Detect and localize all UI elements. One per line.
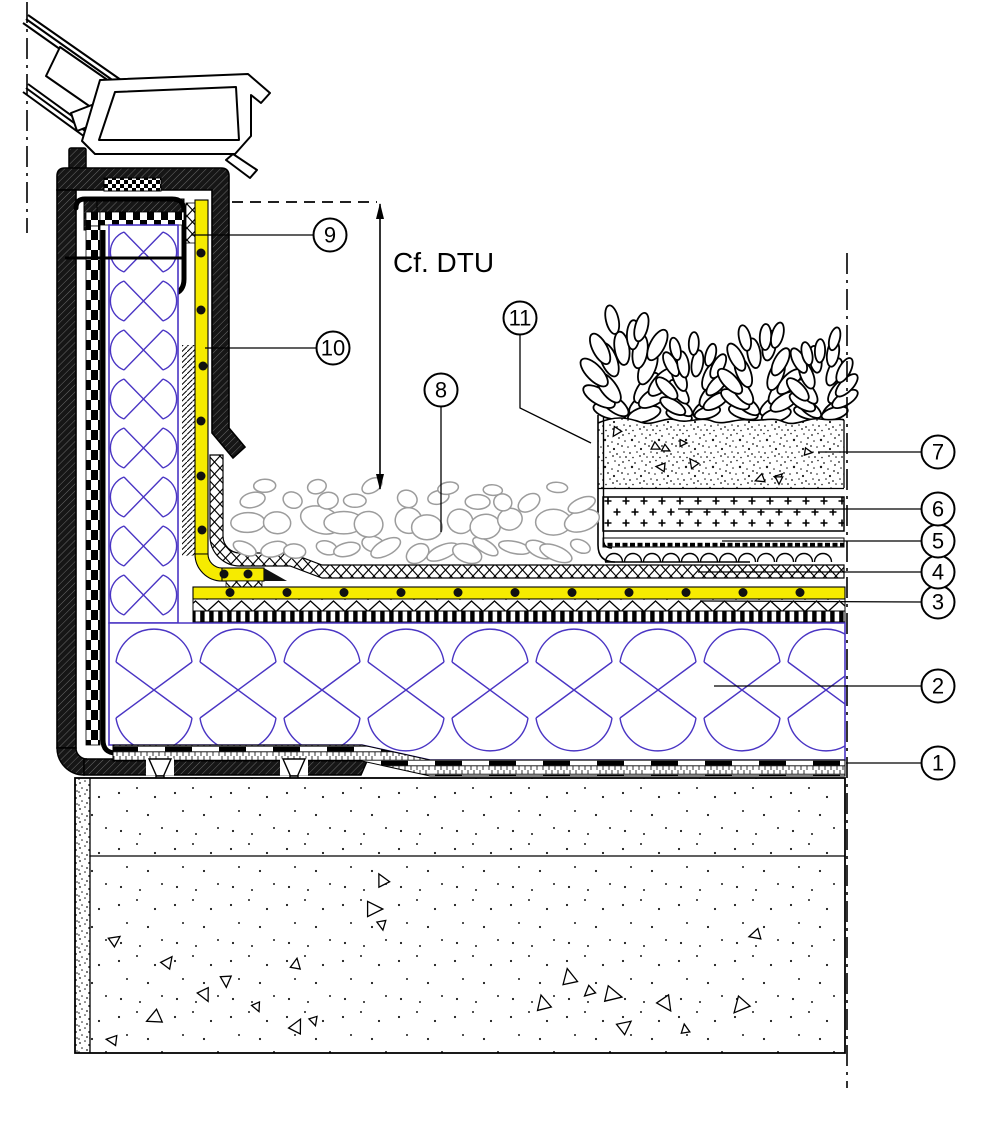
callout-10-label: 10 bbox=[321, 336, 345, 361]
layer-3-base-sheet bbox=[193, 611, 845, 622]
metal-coping-profile bbox=[23, 15, 270, 178]
callout-11: 11 bbox=[504, 302, 592, 444]
concrete-slab bbox=[75, 778, 845, 1053]
outer-wall-cladding bbox=[57, 190, 76, 748]
green-roof-buildup bbox=[576, 304, 861, 562]
coping-drip-tail bbox=[226, 154, 257, 178]
sedum-plants bbox=[576, 304, 861, 426]
vapour-barrier-top-wrap bbox=[100, 212, 184, 225]
gravel-pebbles bbox=[230, 474, 602, 567]
callout-7-label: 7 bbox=[932, 440, 944, 465]
technical-drawing-canvas: Cf. DTU 1234567891011 bbox=[0, 0, 999, 1121]
layer-5-filter bbox=[603, 538, 844, 547]
callout-5-label: 5 bbox=[932, 529, 944, 554]
callout-1-label: 1 bbox=[932, 751, 944, 776]
callout-9-label: 9 bbox=[324, 223, 336, 248]
slab-structure-zone bbox=[90, 856, 845, 1053]
slab-screed-zone bbox=[90, 778, 845, 856]
membrane-upstand-corner bbox=[195, 554, 222, 581]
dimension-note: Cf. DTU bbox=[393, 247, 494, 278]
protection-strip bbox=[182, 345, 196, 556]
cladding-bottom-corner bbox=[57, 748, 87, 775]
cap-fixing-cleat bbox=[104, 178, 161, 191]
roof-parapet-section-drawing: Cf. DTU 1234567891011 bbox=[0, 0, 999, 1121]
membrane-termination-wedge bbox=[264, 568, 287, 581]
callout-1: 1 bbox=[846, 747, 955, 780]
drainage-board bbox=[605, 554, 832, 563]
callout-3-label: 3 bbox=[932, 590, 944, 615]
layer-2-insulation bbox=[109, 623, 845, 760]
callout-2-label: 2 bbox=[932, 674, 944, 699]
coping-body-inner bbox=[99, 87, 239, 140]
callout-4-label: 4 bbox=[932, 560, 944, 585]
callout-8: 8 bbox=[425, 374, 458, 533]
callout-8-label: 8 bbox=[435, 378, 447, 403]
callout-11-label: 11 bbox=[509, 306, 532, 331]
slab-edge-face bbox=[75, 778, 90, 1053]
vapour-barrier-upstand bbox=[86, 226, 100, 745]
dimension-arrow-up bbox=[376, 203, 384, 219]
cap-top-tab bbox=[69, 148, 86, 170]
callout-6-label: 6 bbox=[932, 497, 944, 522]
layer-6-drainage bbox=[603, 497, 844, 531]
